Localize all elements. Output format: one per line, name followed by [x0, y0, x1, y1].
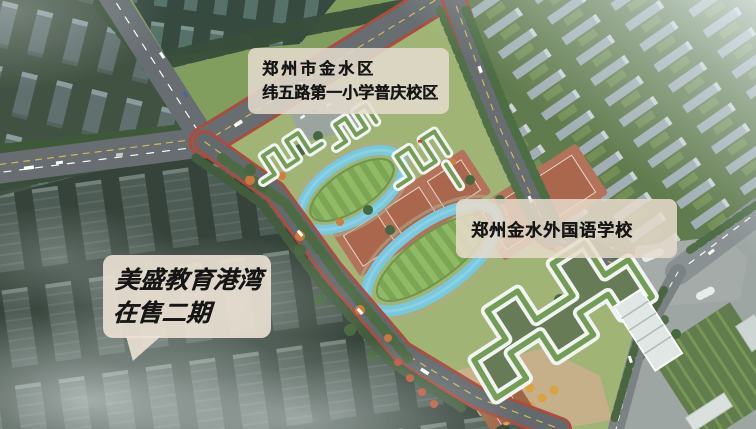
aerial-render-scene: 郑州市金水区 纬五路第一小学普庆校区 郑州金水外国语学校 美盛教育港湾 在售二期 [0, 0, 756, 429]
label-foreign-language-school: 郑州金水外国语学校 [456, 199, 677, 258]
project-status-bubble: 美盛教育港湾 在售二期 [103, 255, 271, 338]
primary-school-name-line1: 郑州市金水区 [262, 58, 443, 82]
label-primary-school: 郑州市金水区 纬五路第一小学普庆校区 [248, 48, 449, 114]
foreign-language-school-name: 郑州金水外国语学校 [471, 216, 633, 241]
primary-school-name-line2: 纬五路第一小学普庆校区 [262, 82, 443, 106]
project-name: 美盛教育港湾 [114, 264, 273, 297]
project-sales-status: 在售二期 [112, 297, 271, 330]
